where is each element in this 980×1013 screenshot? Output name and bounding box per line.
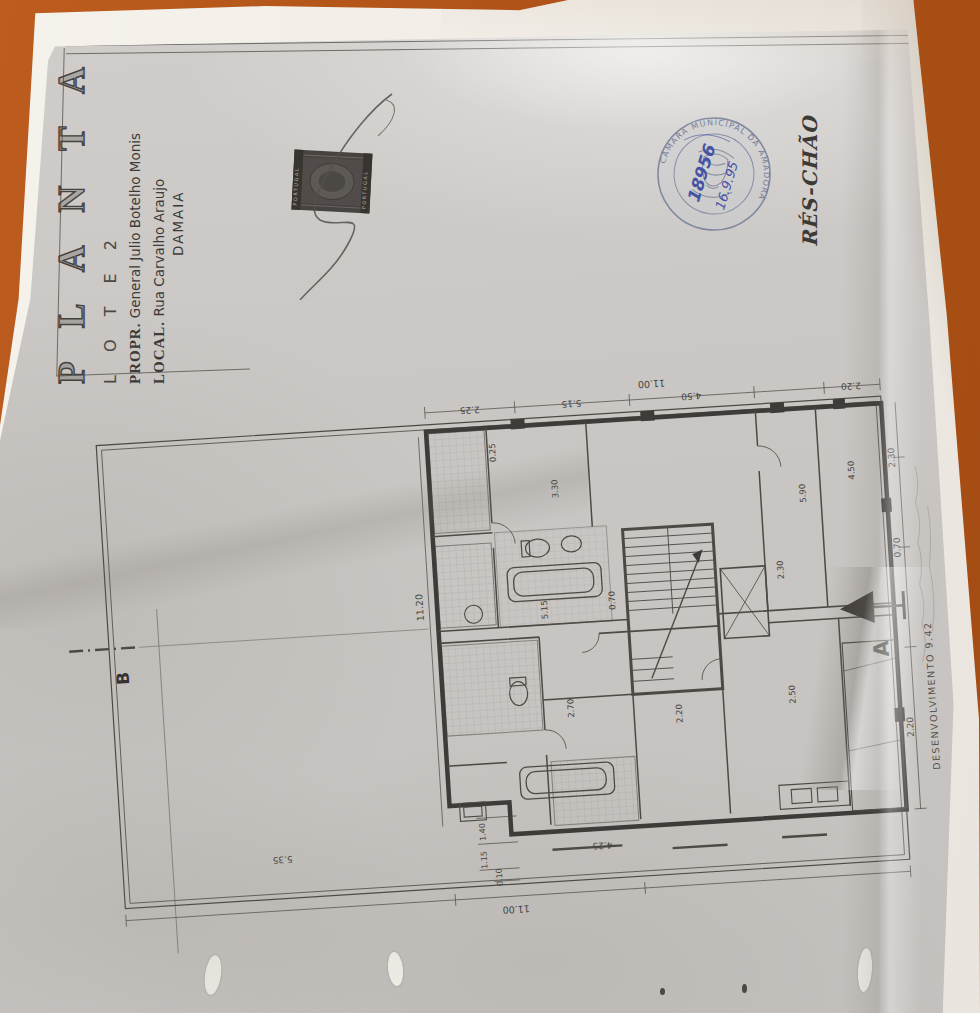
whiteout-blob xyxy=(202,954,223,996)
municipal-stamp: CÂMARA MUNICIPAL DA AMADORA 18956 16.9.9… xyxy=(643,103,786,246)
dimension-label: 5.15 xyxy=(561,398,582,409)
dimension-label: 0.10 xyxy=(495,868,505,886)
stair-core xyxy=(623,524,723,694)
sheet-cut-edge xyxy=(62,21,912,32)
paper-sheet: P L A N T A S L O T E 2 PROPR. General J… xyxy=(0,0,980,1013)
dimension-label: 11.00 xyxy=(638,378,666,391)
dimension-label: 1.40 xyxy=(478,823,488,841)
lift-shaft xyxy=(720,566,769,639)
document-title: P L A N T A S xyxy=(50,44,93,384)
floor-label-wrap: RÉS-CHÃO xyxy=(798,112,852,247)
dimension-label: 2.20 xyxy=(905,716,916,737)
dimension-label: 4.50 xyxy=(681,390,702,401)
photo-of-floor-plan-document: P L A N T A S L O T E 2 PROPR. General J… xyxy=(0,0,980,1013)
whiteout-blob xyxy=(386,951,404,986)
dimension-label: 2.70 xyxy=(565,699,576,719)
dimension-label: 2.30 xyxy=(886,447,897,468)
location-label: LOCAL. xyxy=(151,321,167,384)
ink-speck xyxy=(742,984,747,993)
dimension-label: 11.00 xyxy=(502,903,530,916)
dimension-label: 2.50 xyxy=(787,685,798,705)
kitchen-counter xyxy=(779,781,850,809)
owner-value: General Julio Botelho Monis xyxy=(127,133,143,318)
owner-label: PROPR. xyxy=(127,323,143,384)
dimension-label: 5.15 xyxy=(539,600,550,620)
stamp-outer-circle xyxy=(652,112,777,237)
location-value: Rua Carvalho Araujo xyxy=(151,179,167,317)
dimension-label: 2.30 xyxy=(775,560,786,580)
dimension-label: 2.20 xyxy=(674,704,685,724)
fiscal-stamp-and-signature: PORTUGAL PORTUGAL xyxy=(250,80,430,300)
section-a-label: A xyxy=(869,639,894,657)
dimension-label: 0.70 xyxy=(606,591,617,611)
ink-speck xyxy=(660,988,665,995)
dimension-label: 5.35 xyxy=(272,854,293,865)
development-label: DESENVOLVIMENTO 9.42 xyxy=(922,621,942,770)
scanned-document-area: P L A N T A S L O T E 2 PROPR. General J… xyxy=(0,0,980,1013)
title-block: P L A N T A S L O T E 2 PROPR. General J… xyxy=(50,44,245,384)
lot-subtitle: L O T E 2 xyxy=(101,44,120,384)
dimension-label: 2.20 xyxy=(840,380,861,391)
dimension-label: 1.15 xyxy=(479,851,489,869)
section-b-label: B xyxy=(113,671,134,685)
location-value-line2: DAMAIA xyxy=(170,44,186,256)
dimension-label: 11.20 xyxy=(413,594,426,622)
dimension-label: 4.25 xyxy=(592,840,613,851)
floor-label: RÉS-CHÃO xyxy=(798,112,850,247)
tiled-floor-hatching xyxy=(428,422,639,832)
dimension-label: 2.25 xyxy=(459,404,480,415)
signature-flourish-2 xyxy=(378,100,394,136)
dimension-label: 3.30 xyxy=(549,479,560,499)
whiteout-blob xyxy=(856,948,873,993)
dimension-label: 0.70 xyxy=(892,537,903,558)
dimension-label: 0.25 xyxy=(487,443,498,463)
stair-direction-arrow xyxy=(644,550,710,678)
floor-plan-drawing: 11.00 2.25 5.15 4.50 2.20 11.00 5.35 4.2… xyxy=(53,345,966,959)
dimension-label: 5.90 xyxy=(797,484,808,504)
dimension-label: 4.50 xyxy=(846,460,857,480)
